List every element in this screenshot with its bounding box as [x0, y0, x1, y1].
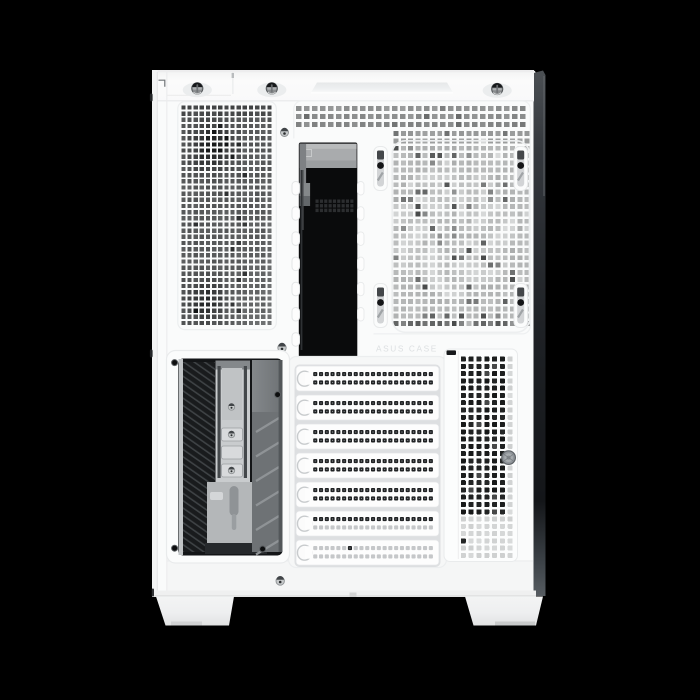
svg-text:ASUS CASE: ASUS CASE — [376, 344, 438, 354]
